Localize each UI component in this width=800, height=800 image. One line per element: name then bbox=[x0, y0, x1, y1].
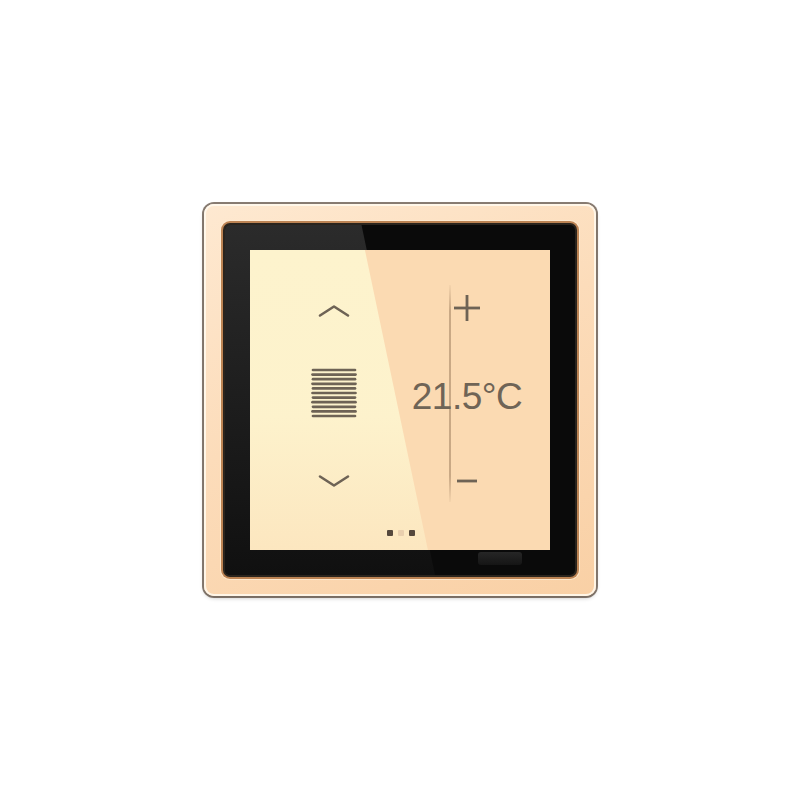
proximity-sensor-window bbox=[478, 552, 522, 565]
temperature-decrease-button[interactable] bbox=[455, 478, 479, 484]
background: 21.5°C bbox=[0, 0, 800, 800]
page-dot-active bbox=[387, 530, 393, 536]
shutter-position-button[interactable] bbox=[310, 367, 358, 419]
controller-frame: 21.5°C bbox=[204, 204, 596, 596]
chevron-up-icon bbox=[318, 305, 350, 318]
page-indicator[interactable] bbox=[387, 530, 415, 536]
shutter-up-button[interactable] bbox=[318, 305, 350, 318]
page-dot-inactive bbox=[398, 530, 404, 536]
blinds-icon bbox=[310, 367, 358, 419]
temperature-display: 21.5°C bbox=[412, 376, 523, 418]
glass-bezel: 21.5°C bbox=[225, 225, 575, 575]
shutter-down-button[interactable] bbox=[318, 475, 350, 488]
touchscreen[interactable]: 21.5°C bbox=[250, 250, 550, 550]
plus-icon bbox=[452, 293, 482, 323]
minus-icon bbox=[455, 478, 479, 484]
page-dot-active bbox=[409, 530, 415, 536]
chevron-down-icon bbox=[318, 475, 350, 488]
temperature-increase-button[interactable] bbox=[452, 293, 482, 323]
